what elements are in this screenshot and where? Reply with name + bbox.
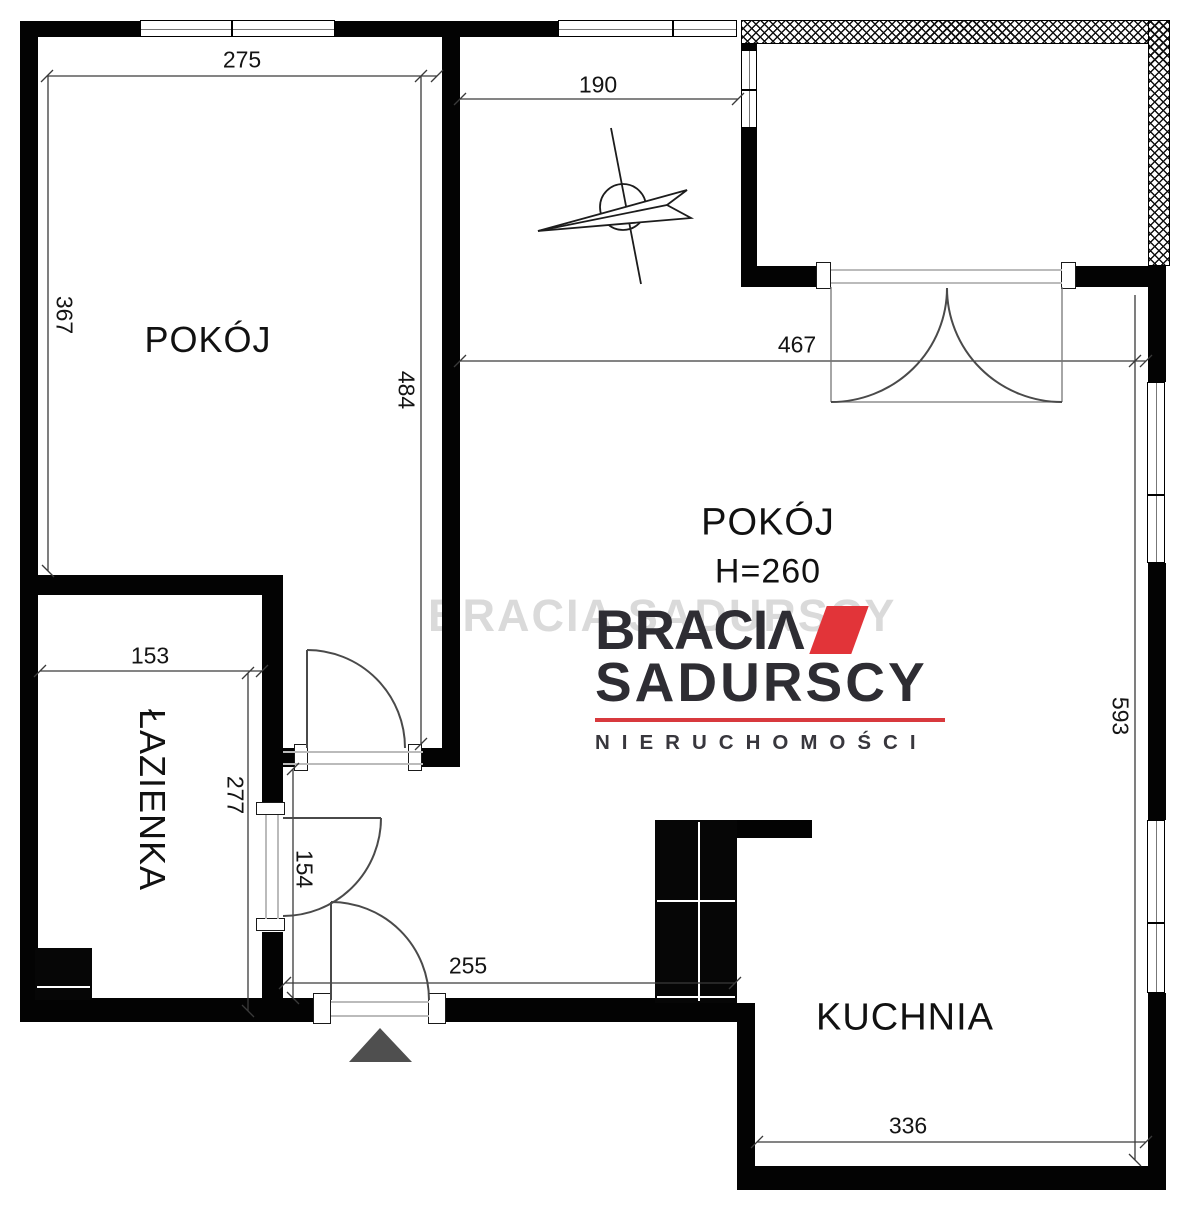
kitchen-shaft (655, 820, 737, 1003)
bathroom-shaft (35, 948, 92, 1000)
wall-segment (460, 21, 558, 37)
wall-segment (1148, 563, 1166, 820)
room-label-kuchnia: KUCHNIA (816, 997, 994, 1040)
logo-red-parallelogram-icon (809, 606, 868, 654)
door-jamb (428, 993, 446, 1024)
window (1147, 382, 1165, 563)
logo-brand-line1: BRACIΛ (595, 604, 804, 656)
dimension-label-154: 154 (291, 850, 318, 888)
dimension-label-593: 593 (1107, 697, 1134, 735)
door-jamb (256, 802, 285, 815)
wall-segment (20, 21, 140, 37)
door-jamb (313, 993, 331, 1024)
wall-segment (741, 128, 757, 287)
dimension-label-367: 367 (51, 296, 78, 334)
wall-segment (737, 1166, 1166, 1190)
room-height-note: H=260 (715, 553, 821, 592)
wall-segment (20, 575, 283, 595)
wall-segment (1148, 993, 1166, 1190)
agency-logo: BRACIΛ SADURSCY NIERUCHOMOŚCI (595, 604, 945, 755)
north-arrow-icon (538, 128, 691, 284)
wall-segment (1148, 266, 1166, 382)
wall-segment (20, 998, 315, 1022)
wall-segment (1076, 266, 1148, 287)
dimension-label-484: 484 (393, 371, 420, 409)
door-jamb (294, 744, 308, 771)
wall-segment (262, 932, 283, 1003)
wall-segment (737, 1003, 755, 1190)
wall-segment (442, 21, 460, 767)
wall-segment (262, 575, 283, 803)
room-label-lazienka: ŁAZIENKA (131, 709, 173, 891)
window (1147, 820, 1165, 993)
wall-segment (20, 21, 38, 1022)
wall-segment (335, 21, 442, 37)
window (558, 20, 737, 37)
dimension-label-190: 190 (579, 72, 617, 99)
balcony-hatched-wall-right (1148, 20, 1170, 266)
room-label-pokoj-main: POKÓJ (701, 502, 835, 545)
door-jamb (408, 744, 422, 771)
logo-brand-line2: SADURSCY (595, 656, 945, 708)
balcony-door-swing (831, 287, 1062, 402)
balcony-hatched-wall-top (741, 20, 1170, 44)
logo-divider (595, 718, 945, 722)
wall-segment (737, 820, 812, 838)
dimension-label-467: 467 (778, 332, 816, 359)
room-label-pokoj-left: POKÓJ (144, 319, 271, 361)
floor-plan: BRACIA SADURSCY (0, 0, 1200, 1218)
door-jamb (1061, 262, 1076, 289)
window (140, 20, 335, 37)
dimension-label-275: 275 (223, 47, 261, 74)
wall-segment (741, 266, 819, 287)
dimension-label-277: 277 (222, 776, 249, 814)
door-jamb (816, 262, 831, 289)
entrance-marker-icon (349, 1028, 412, 1062)
window (741, 50, 757, 128)
dimension-label-336: 336 (889, 1113, 927, 1140)
logo-tagline: NIERUCHOMOŚCI (595, 731, 945, 755)
door-jamb (256, 918, 285, 931)
dimension-label-153: 153 (131, 643, 169, 670)
dimension-label-255: 255 (449, 953, 487, 980)
